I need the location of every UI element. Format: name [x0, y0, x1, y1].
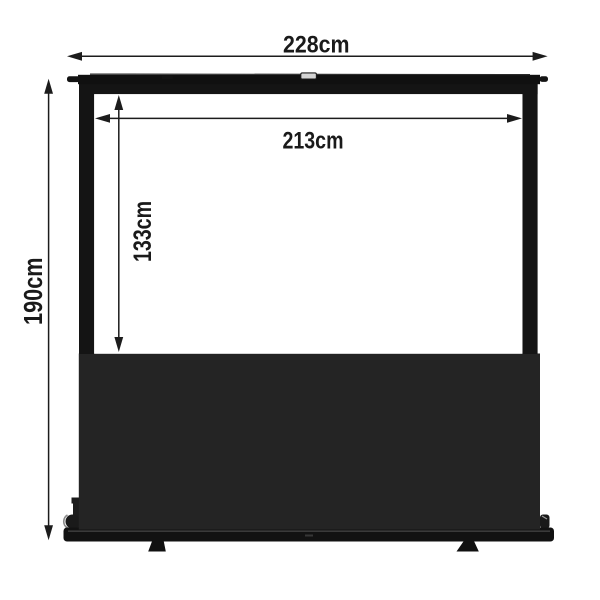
svg-text:133cm: 133cm: [129, 201, 157, 262]
svg-text:213cm: 213cm: [283, 127, 344, 154]
svg-text:228cm: 228cm: [283, 31, 350, 58]
svg-text:190cm: 190cm: [20, 257, 48, 325]
